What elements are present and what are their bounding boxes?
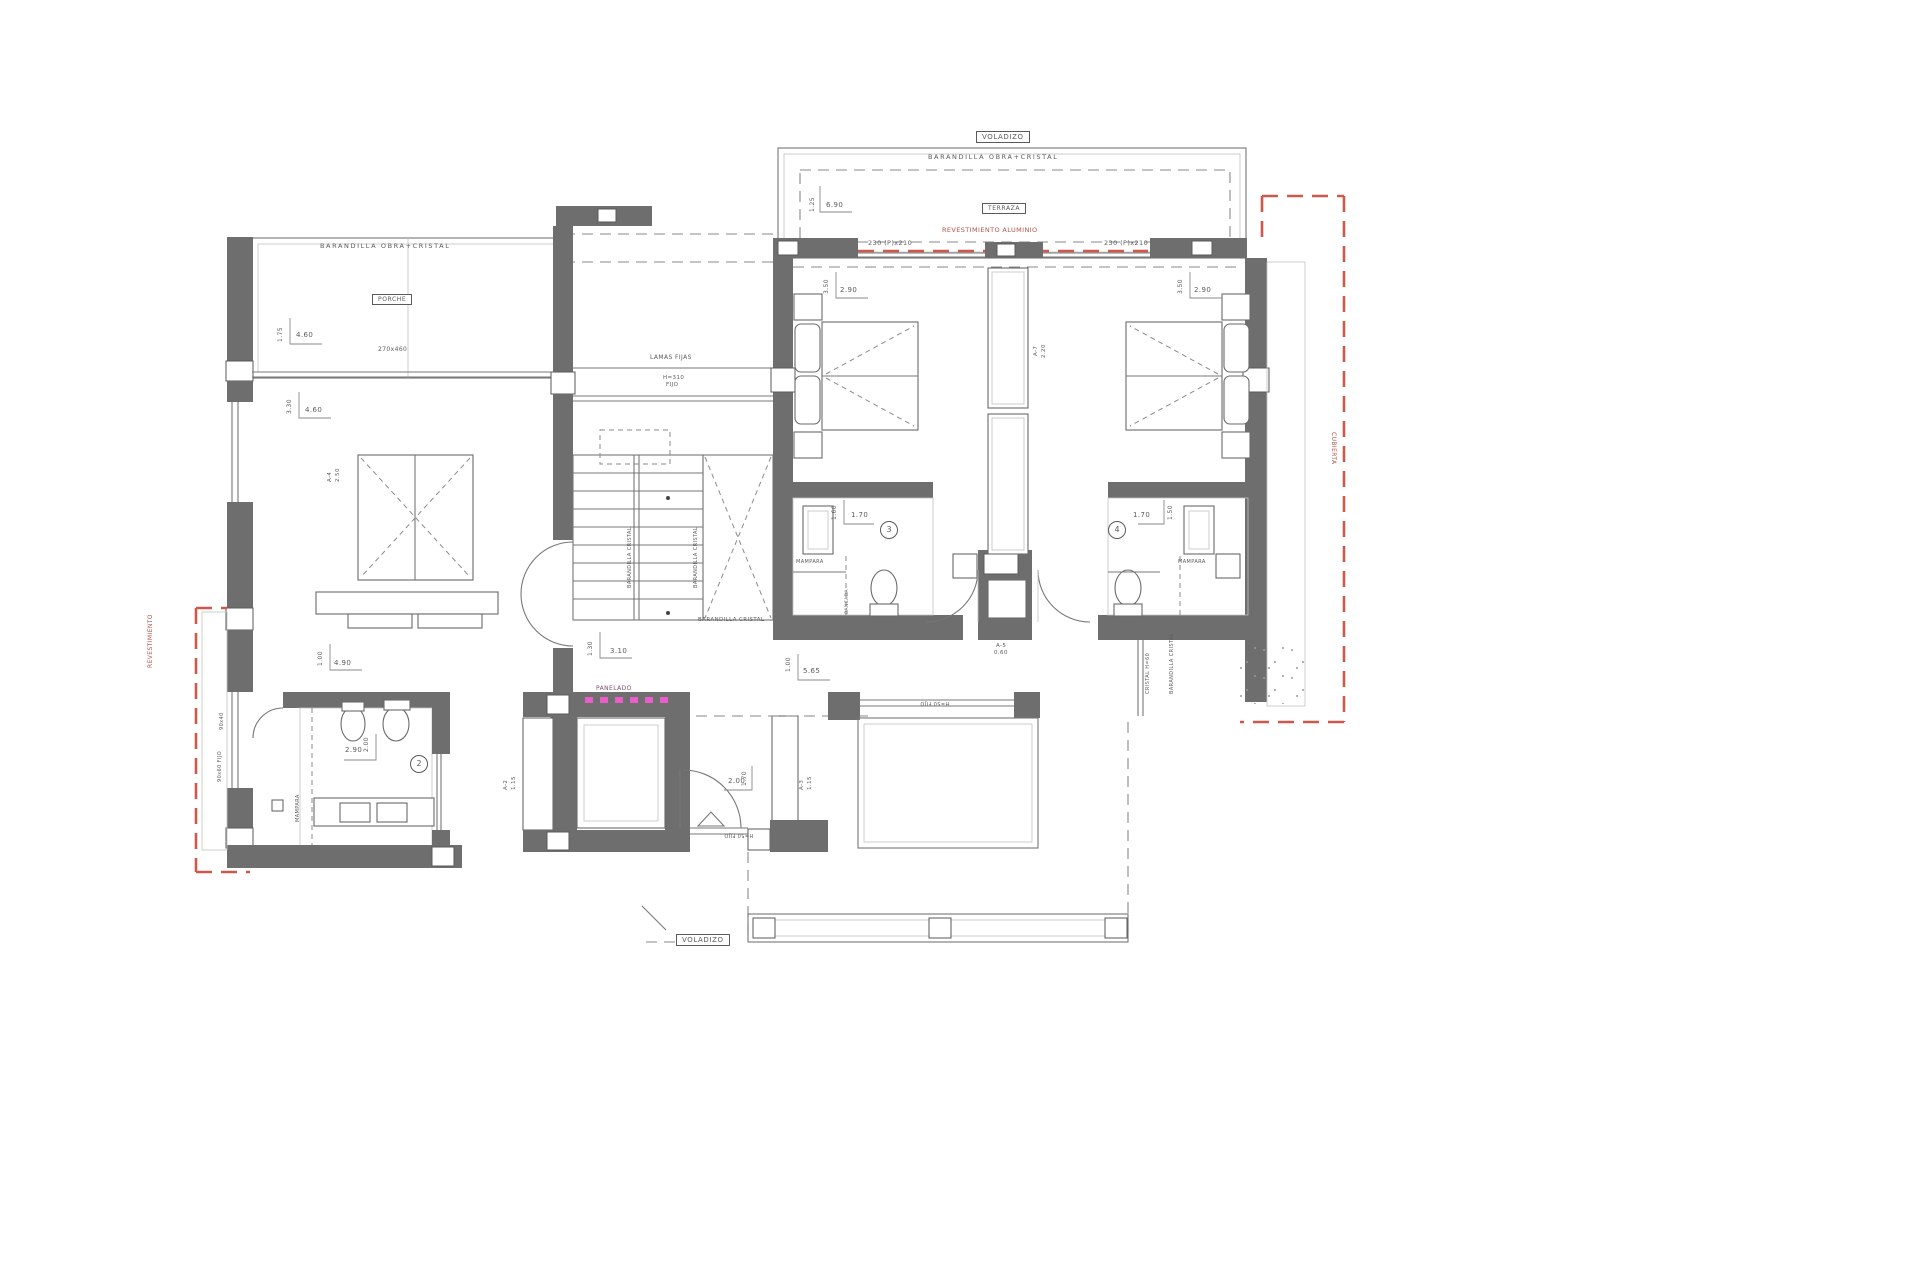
window-90x60: 90x60 FIJO	[218, 751, 223, 782]
dim-bath3-depth: 1.60	[832, 505, 838, 520]
shower-screen2-label: MAMPARA	[296, 794, 301, 822]
closet-a5-size: 0.60	[994, 651, 1008, 657]
room-number-4: 4	[1108, 521, 1126, 539]
glass-h60-label: CRISTAL H=60	[1146, 653, 1151, 694]
terrace-glass-railing-label: BARANDILLA CRISTAL	[1170, 633, 1175, 694]
shower-screen4-label: MAMPARA	[1178, 560, 1206, 565]
floor-plan-canvas: VOLADIZO TERRAZA PORCHE VOLADIZO BARANDI…	[0, 0, 1920, 1280]
dim-terrace-width: 6.90	[826, 202, 843, 209]
roof-right-label: CUBIERTA	[1330, 432, 1336, 465]
dim-stair-depth: 1.30	[588, 641, 594, 656]
terraza-label: TERRAZA	[982, 203, 1026, 214]
bathroom4	[1038, 498, 1248, 716]
closet-a4-code: A-4	[328, 472, 334, 482]
h50-fixed-lift-label: H=50 FIJO	[724, 832, 753, 837]
closet-a2-code: A-2	[504, 780, 510, 790]
bench-label: BANCADA	[846, 589, 851, 614]
dim-bath3-width: 1.70	[851, 512, 868, 519]
window-230-right: 230 (P)x210	[1104, 240, 1148, 247]
shower-screen3-label: MAMPARA	[796, 560, 824, 565]
void-glass-railing-label: BARANDILLA CRISTAL	[698, 618, 764, 624]
fixed-louvres-label: LAMAS FIJAS	[650, 355, 692, 361]
dim-masterbed-width: 4.90	[334, 660, 351, 667]
fijo-label: FIJO	[666, 383, 678, 389]
divider-wall	[521, 206, 775, 717]
closet-a7-size: 2.20	[1042, 344, 1048, 358]
dim-masterbed-depth: 1.00	[318, 651, 324, 666]
room-number-2: 2	[410, 755, 428, 773]
stair-glass-railing-right: BARANDILLA CRISTAL	[694, 527, 699, 588]
dim-bath4-depth: 1.50	[1168, 505, 1174, 520]
aluminium-cladding-label: REVESTIMIENTO ALUMINIO	[942, 227, 1038, 234]
floor-plan-drawing	[0, 0, 1920, 1280]
cladding-left-label: REVESTIMIENTO	[148, 614, 154, 668]
dim-porch-width: 4.60	[296, 332, 313, 339]
bedroom4-bed	[1126, 272, 1250, 458]
h310-label: H=310	[663, 376, 684, 382]
dim-stair-width: 3.10	[610, 648, 627, 655]
closet-a3-code: A-3	[800, 780, 806, 790]
dim-hall-width: 5.65	[803, 668, 820, 675]
closet-a4-size: 2.50	[336, 468, 342, 482]
dim-bath2-width: 2.90	[345, 747, 362, 754]
window-230-left: 230 (P)x210	[868, 240, 912, 247]
dim-liftdoor-width: 2.00	[728, 778, 745, 785]
dim-hall-depth: 1.00	[786, 657, 792, 672]
dim-bed3-width: 2.90	[840, 287, 857, 294]
window-90x40: 90x40	[220, 712, 225, 730]
room-number-3: 3	[880, 521, 898, 539]
closet-a2-size: 1.15	[512, 776, 518, 790]
porch-opening-size: 270x460	[378, 347, 407, 353]
closet-a5-code: A-5	[996, 644, 1006, 650]
closet-a3-size: 1.15	[808, 776, 814, 790]
dim-bed3-depth: 3.50	[824, 279, 830, 294]
dim-terrace-depth: 1.25	[810, 197, 816, 212]
master-bed	[316, 455, 498, 670]
left-wall	[226, 381, 331, 848]
porch-railing-label: BARANDILLA OBRA+CRISTAL	[320, 243, 450, 250]
dim-porch-depth: 1.75	[278, 327, 284, 342]
dim-room-depth: 3.30	[287, 399, 293, 414]
voladizo-top-label: VOLADIZO	[976, 131, 1030, 143]
h50-fixed-terrace-label: H=50 FIJO	[920, 700, 949, 705]
bathroom2	[227, 692, 462, 868]
porche-label: PORCHE	[372, 294, 412, 305]
panelling-label: PANELADO	[596, 686, 632, 692]
terrace-railing-label: BARANDILLA OBRA+CRISTAL	[928, 154, 1058, 161]
dim-bath4-width: 1.70	[1133, 512, 1150, 519]
porch	[226, 237, 564, 381]
dim-bed4-width: 2.90	[1194, 287, 1211, 294]
voladizo-bottom-label: VOLADIZO	[676, 934, 730, 946]
closet-a7-code: A-7	[1034, 346, 1040, 356]
staircase	[573, 430, 773, 658]
dim-room-width: 4.60	[305, 407, 322, 414]
stair-glass-railing-left: BARANDILLA CRISTAL	[628, 527, 633, 588]
bedroom3-bed	[794, 272, 918, 458]
dim-bath2-depth: 2.00	[364, 737, 370, 752]
dim-bed4-depth: 3.50	[1178, 279, 1184, 294]
